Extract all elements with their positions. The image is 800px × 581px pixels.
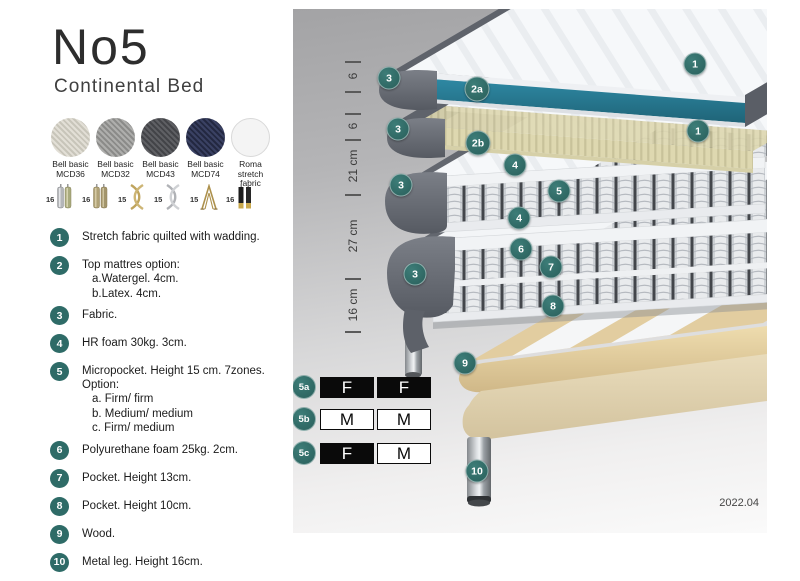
fabric-swatch: Roma stretch fabric	[228, 118, 273, 189]
layer-badge: 3	[404, 263, 427, 286]
feature-text: Top mattres option: a.Watergel. 4cm. b.L…	[82, 256, 180, 301]
firmness-row: M M	[320, 409, 431, 430]
fabric-name: Bell basic	[97, 159, 133, 169]
layer-badge: 10	[466, 460, 489, 483]
ruler-tick	[345, 278, 361, 280]
leg-option: 16	[226, 184, 262, 215]
feature-number-badge: 5	[50, 362, 69, 381]
fabric-code: MCD32	[101, 169, 130, 179]
feature-number-badge: 9	[50, 525, 69, 544]
leg-height: 15	[118, 195, 126, 204]
page-subtitle: Continental Bed	[54, 76, 204, 98]
fabric-swatch: Bell basic MCD74	[183, 118, 228, 189]
firmness-cell: M	[377, 409, 431, 430]
leg-height: 15	[190, 195, 198, 204]
leg-option: 15	[154, 184, 190, 215]
fabric-swatch-label: Bell basic MCD74	[183, 160, 228, 179]
fabric-swatch-circle	[186, 118, 225, 157]
leg-height: 16	[82, 195, 90, 204]
page-title: No5	[52, 22, 150, 72]
fabric-code: MCD74	[191, 169, 220, 179]
fabric-swatch-circle	[96, 118, 135, 157]
feature-number-badge: 10	[50, 553, 69, 572]
firmness-cell: M	[320, 409, 374, 430]
layer-badge: 3	[378, 67, 401, 90]
feature-list: 1 Stretch fabric quilted with wadding. 2…	[50, 228, 296, 581]
layer-badge: 5	[548, 180, 571, 203]
feature-number-badge: 4	[50, 334, 69, 353]
feature-number-badge: 6	[50, 441, 69, 460]
fabric-code: MCD43	[146, 169, 175, 179]
leg-options-row: 16 16 15 15 15	[46, 184, 262, 215]
fabric-swatch-label: Bell basic MCD32	[93, 160, 138, 179]
fabric-swatch-circle	[231, 118, 270, 157]
feature-text: Pocket. Height 10cm.	[82, 497, 191, 516]
feature-number-badge: 7	[50, 469, 69, 488]
feature-item: 7 Pocket. Height 13cm.	[50, 469, 296, 488]
feature-item: 10 Metal leg. Height 16cm.	[50, 553, 296, 572]
ruler-label: 6	[346, 123, 360, 130]
feature-item: 6 Polyurethane foam 25kg. 2cm.	[50, 441, 296, 460]
fabric-name: Roma	[239, 159, 262, 169]
twisted-gold-leg-icon	[127, 184, 147, 215]
fabric-code: MCD36	[56, 169, 85, 179]
ruler-tick	[345, 331, 361, 333]
feature-item: 1 Stretch fabric quilted with wadding.	[50, 228, 296, 247]
fabric-swatch-circle	[51, 118, 90, 157]
leg-option: 16	[82, 184, 118, 215]
layer-badge: 1	[687, 120, 710, 143]
feature-text: Pocket. Height 13cm.	[82, 469, 191, 488]
hairpin-leg-icon	[199, 184, 219, 215]
firmness-row-badge: 5a	[293, 375, 316, 399]
ruler-tick	[345, 113, 361, 115]
feature-text: Stretch fabric quilted with wadding.	[82, 228, 260, 247]
feature-text: Micropocket. Height 15 cm. 7zones. Optio…	[82, 362, 296, 436]
layer-badge: 2a	[465, 77, 490, 102]
layer-badge: 3	[390, 174, 413, 197]
feature-text: Fabric.	[82, 306, 117, 325]
layer-badge: 4	[508, 207, 531, 230]
feature-number-badge: 1	[50, 228, 69, 247]
firmness-row: F M	[320, 443, 431, 464]
leg-height: 16	[226, 195, 234, 204]
ruler-label: 27 cm	[346, 220, 360, 253]
firmness-cell: F	[320, 443, 374, 464]
leg-option: 15	[118, 184, 154, 215]
layer-badge: 6	[510, 238, 533, 261]
layer-badge: 1	[684, 53, 707, 76]
feature-main-text: Top mattres option:	[82, 259, 180, 271]
leg-height: 15	[154, 195, 162, 204]
feature-main-text: Micropocket. Height 15 cm. 7zones. Optio…	[82, 365, 265, 391]
fabric-swatch-row: Bell basic MCD36 Bell basic MCD32 Bell b…	[48, 118, 273, 189]
fabric-swatch: Bell basic MCD36	[48, 118, 93, 189]
feature-item: 2 Top mattres option: a.Watergel. 4cm. b…	[50, 256, 296, 301]
fabric-swatch-circle	[141, 118, 180, 157]
feature-sub-text: b.Latex. 4cm.	[92, 288, 161, 300]
cylinder-black-gold-leg-icon	[235, 184, 255, 215]
firmness-row: F F	[320, 377, 431, 398]
feature-sub-text: a.Watergel. 4cm.	[92, 273, 179, 285]
ruler-tick	[345, 61, 361, 63]
feature-text: HR foam 30kg. 3cm.	[82, 334, 187, 353]
fabric-name: Bell basic	[142, 159, 178, 169]
feature-item: 3 Fabric.	[50, 306, 296, 325]
feature-text: Metal leg. Height 16cm.	[82, 553, 203, 572]
feature-text: Wood.	[82, 525, 115, 544]
layer-badge: 7	[540, 256, 563, 279]
firmness-cell: M	[377, 443, 431, 464]
firmness-cell: F	[377, 377, 431, 398]
leg-option: 16	[46, 184, 82, 215]
feature-item: 8 Pocket. Height 10cm.	[50, 497, 296, 516]
ruler-tick	[345, 139, 361, 141]
feature-item: 9 Wood.	[50, 525, 296, 544]
fabric-swatch: Bell basic MCD43	[138, 118, 183, 189]
firmness-row-badge: 5c	[293, 441, 316, 465]
bed-cutaway-diagram: 6 6 21 cm 27 cm 16 cm 1 3 2a 1 3 2b 4 3 …	[293, 9, 767, 533]
feature-number-badge: 8	[50, 497, 69, 516]
feature-number-badge: 3	[50, 306, 69, 325]
layer-badge: 9	[454, 352, 477, 375]
fabric-name: Bell basic	[187, 159, 223, 169]
layer-badge: 2b	[466, 131, 491, 156]
ruler-label: 6	[346, 73, 360, 80]
fabric-swatch: Bell basic MCD32	[93, 118, 138, 189]
feature-sub-text: a. Firm/ firm	[92, 393, 153, 405]
cylinder-brass-leg-icon	[91, 184, 111, 215]
layer-badge: 3	[387, 118, 410, 141]
layer-badge: 4	[504, 154, 527, 177]
feature-item: 5 Micropocket. Height 15 cm. 7zones. Opt…	[50, 362, 296, 436]
leg-option: 15	[190, 184, 226, 215]
firmness-row-badge: 5b	[293, 407, 316, 431]
fabric-swatch-label: Bell basic MCD36	[48, 160, 93, 179]
ruler-tick	[345, 91, 361, 93]
feature-item: 4 HR foam 30kg. 3cm.	[50, 334, 296, 353]
fabric-swatch-label: Bell basic MCD43	[138, 160, 183, 179]
feature-sub-text: b. Medium/ medium	[92, 408, 193, 420]
feature-sub-text: c. Firm/ medium	[92, 422, 174, 434]
ruler-tick	[345, 194, 361, 196]
twisted-silver-leg-icon	[163, 184, 183, 215]
fabric-name: Bell basic	[52, 159, 88, 169]
layer-badge: 8	[542, 295, 565, 318]
ruler-label: 16 cm	[346, 289, 360, 322]
firmness-cell: F	[320, 377, 374, 398]
feature-number-badge: 2	[50, 256, 69, 275]
leg-height: 16	[46, 195, 54, 204]
ruler-label: 21 cm	[346, 150, 360, 183]
cylinder-silver-leg-icon	[55, 184, 75, 215]
feature-text: Polyurethane foam 25kg. 2cm.	[82, 441, 238, 460]
version-stamp: 2022.04	[683, 497, 759, 509]
